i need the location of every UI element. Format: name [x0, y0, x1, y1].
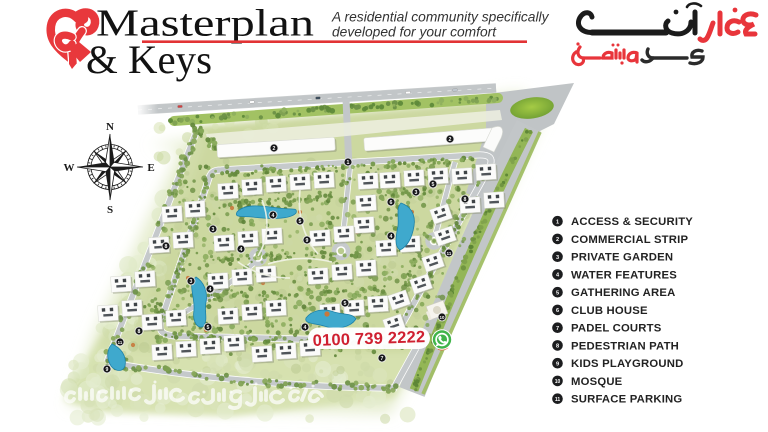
svg-text:6: 6 — [556, 308, 559, 314]
svg-text:9: 9 — [556, 361, 559, 367]
svg-text:GATHERING AREA: GATHERING AREA — [571, 287, 675, 299]
svg-text:5: 5 — [344, 301, 347, 307]
svg-text:9: 9 — [106, 367, 109, 373]
svg-text:10: 10 — [555, 379, 561, 385]
svg-text:11: 11 — [118, 340, 123, 345]
svg-text:PADEL COURTS: PADEL COURTS — [571, 323, 662, 335]
svg-text:E: E — [147, 162, 154, 174]
svg-text:W: W — [64, 162, 75, 174]
svg-text:7: 7 — [556, 326, 559, 332]
svg-text:KIDS PLAYGROUND: KIDS PLAYGROUND — [571, 358, 683, 370]
svg-text:SURFACE PARKING: SURFACE PARKING — [571, 394, 682, 406]
svg-text:10: 10 — [440, 315, 445, 320]
svg-text:4: 4 — [304, 325, 307, 331]
svg-text:4: 4 — [272, 213, 275, 219]
svg-text:8: 8 — [556, 344, 559, 350]
svg-text:5: 5 — [556, 290, 559, 296]
svg-text:PRIVATE GARDEN: PRIVATE GARDEN — [571, 252, 673, 264]
svg-text:5: 5 — [299, 219, 302, 225]
svg-text:COMMERCIAL STRIP: COMMERCIAL STRIP — [571, 234, 688, 246]
svg-text:CLUB HOUSE: CLUB HOUSE — [571, 305, 648, 317]
svg-text:3: 3 — [556, 255, 559, 261]
svg-text:N: N — [106, 121, 114, 133]
svg-text:5: 5 — [207, 325, 210, 331]
svg-text:1: 1 — [347, 160, 350, 166]
svg-text:S: S — [107, 204, 113, 216]
svg-text:5: 5 — [432, 182, 435, 188]
svg-text:2: 2 — [449, 137, 452, 143]
svg-text:ACCESS & SECURITY: ACCESS & SECURITY — [571, 216, 693, 228]
svg-text:2: 2 — [273, 146, 276, 152]
svg-text:3: 3 — [190, 279, 193, 285]
svg-text:A residential community specif: A residential community specifically — [331, 10, 550, 25]
svg-text:6: 6 — [390, 200, 393, 206]
svg-text:2: 2 — [556, 237, 559, 243]
svg-text:9: 9 — [306, 238, 309, 244]
svg-text:8: 8 — [138, 329, 141, 335]
svg-text:3: 3 — [415, 190, 418, 196]
svg-text:8: 8 — [464, 197, 467, 203]
svg-text:1: 1 — [556, 219, 559, 225]
svg-text:4: 4 — [240, 247, 243, 253]
svg-text:developed for your comfort: developed for your comfort — [332, 25, 497, 40]
svg-text:3: 3 — [212, 227, 215, 233]
svg-text:4: 4 — [390, 234, 393, 240]
svg-text:7: 7 — [381, 356, 384, 362]
svg-text:4: 4 — [209, 287, 212, 293]
svg-text:MOSQUE: MOSQUE — [571, 376, 623, 388]
svg-text:11: 11 — [447, 251, 452, 256]
svg-text:8: 8 — [165, 244, 168, 250]
svg-text:WATER FEATURES: WATER FEATURES — [571, 269, 677, 281]
svg-text:11: 11 — [555, 397, 561, 403]
svg-text:PEDESTRIAN PATH: PEDESTRIAN PATH — [571, 340, 679, 352]
svg-text:& Keys: & Keys — [86, 37, 212, 82]
